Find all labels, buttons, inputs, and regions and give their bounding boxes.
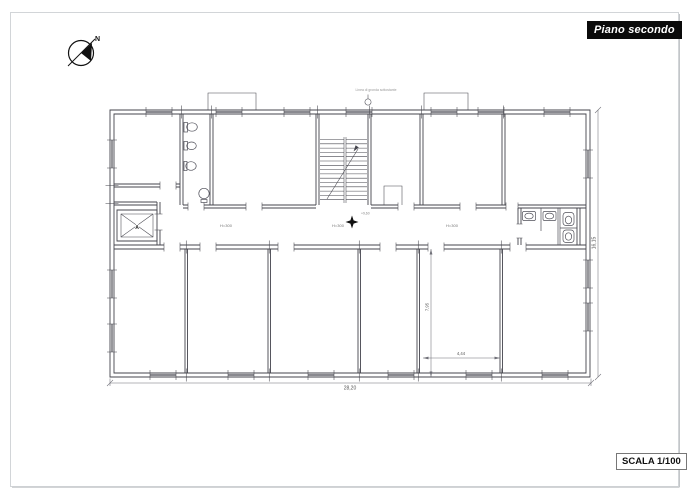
window (107, 140, 117, 168)
window (583, 303, 593, 331)
bathroom-right (517, 208, 581, 245)
window (431, 107, 457, 117)
wash-basin (545, 213, 553, 219)
level-marker-label: +9,60 (361, 212, 370, 216)
roof-vent-symbol (365, 99, 371, 105)
basin-spout (201, 200, 207, 203)
level-marker-star-icon (346, 216, 359, 229)
dim-overall-width: 28,20 (344, 386, 357, 392)
window (146, 107, 172, 117)
window (228, 370, 254, 380)
window (107, 270, 117, 298)
window (107, 324, 117, 352)
dim-room-depth: 7,95 (425, 302, 430, 311)
window (583, 260, 593, 288)
corridor-height-label: H=300 (446, 223, 459, 228)
floor-title-badge: Piano secondo (587, 21, 682, 39)
scale-badge: SCALA 1/100 (616, 453, 687, 470)
toilet-bowl (565, 216, 571, 224)
roof-note-label: Linea di gronda sottostante (356, 88, 397, 92)
window (388, 370, 414, 380)
north-label: N (95, 36, 100, 43)
interior-walls (114, 114, 586, 373)
toilet-bowl (187, 123, 198, 131)
window (466, 370, 492, 380)
floor-plan: N (0, 0, 700, 495)
drawing-sheet: N (0, 0, 700, 495)
toilet (563, 230, 574, 243)
toilet-bowl (565, 233, 571, 240)
window (544, 107, 570, 117)
window (150, 370, 176, 380)
staircase (320, 137, 367, 203)
dim-room-width: 4,44 (457, 351, 466, 356)
window (478, 107, 504, 117)
bathroom-left-fixtures (184, 123, 209, 203)
bidet-bowl (187, 142, 197, 150)
elevator-shaft: A (117, 210, 157, 241)
wash-basin (525, 213, 533, 219)
window (583, 150, 593, 178)
window (542, 370, 568, 380)
roof-projections (208, 93, 468, 110)
window (284, 107, 310, 117)
north-arrow-icon: N (68, 36, 100, 66)
sheet-border (11, 13, 680, 488)
round-basin (199, 188, 209, 198)
dim-overall-height: 16,15 (592, 237, 598, 250)
corridor-height-label: H=300 (220, 223, 233, 228)
corridor-height-label: H=300 (332, 223, 345, 228)
window (308, 370, 334, 380)
elevator-label: A (135, 225, 139, 231)
window (216, 107, 242, 117)
sink-basin (186, 162, 196, 171)
